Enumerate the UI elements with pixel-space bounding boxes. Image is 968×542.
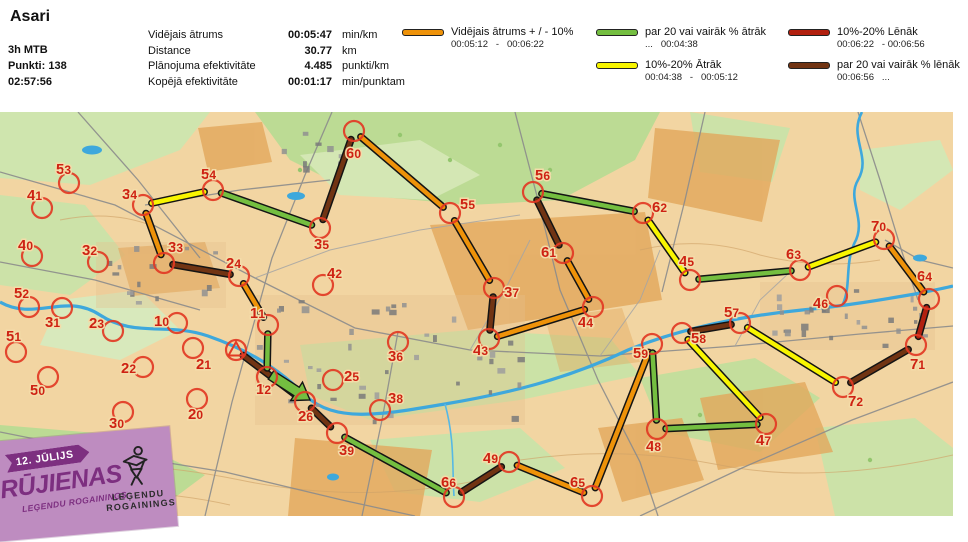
legend-item-orange: Vidējais ātrums + / - 10%00:05:12 - 00:0… — [402, 26, 597, 50]
event-info: 3h MTB Punkti: 138 02:57:56 — [8, 42, 67, 90]
control-label-65: 65 — [570, 474, 585, 491]
control-label-39: 39 — [339, 442, 354, 459]
legend-range: 00:04:38 - 00:05:12 — [596, 72, 791, 83]
control-label-49: 49 — [483, 450, 498, 467]
stat-value-0: 00:05:47 — [270, 28, 332, 44]
control-label-55: 55 — [460, 196, 475, 213]
control-label-34: 34 — [122, 186, 137, 203]
control-label-63: 63 — [786, 246, 801, 263]
legend-item-green: par 20 vai vairāk % ātrāk... 00:04:38 — [596, 26, 791, 50]
control-label-72: 72 — [848, 393, 863, 410]
legend-label: 10%-20% Ātrāk — [645, 59, 721, 71]
legend-swatch-brown — [788, 62, 830, 69]
legend-range: 00:06:56 ... — [788, 72, 968, 83]
stat-value-2: 4.485 — [270, 59, 332, 75]
points-label: Punkti: 138 — [8, 58, 67, 74]
control-label-54: 54 — [201, 166, 216, 183]
route-segment-48-47 — [666, 424, 757, 428]
control-label-42: 42 — [327, 265, 342, 282]
legend-item-yellow: 10%-20% Ātrāk00:04:38 - 00:05:12 — [596, 59, 791, 83]
legend-item-brown: par 20 vai vairāk % lēnāk00:06:56 ... — [788, 59, 968, 83]
control-label-61: 61 — [541, 244, 556, 261]
route-segment-11-12 — [267, 334, 268, 368]
legend-swatch-green — [596, 29, 638, 36]
route-segment-43-37 — [490, 297, 493, 330]
class-label: 3h MTB — [8, 42, 67, 58]
time-label: 02:57:56 — [8, 74, 67, 90]
control-label-35: 35 — [314, 236, 329, 253]
control-label-53: 53 — [56, 161, 71, 178]
control-label-45: 45 — [679, 253, 694, 270]
control-label-71: 71 — [910, 356, 925, 373]
legend-label: Vidējais ātrums + / - 10% — [451, 26, 573, 38]
control-label-11: 11 — [250, 305, 265, 322]
legend-label: par 20 vai vairāk % lēnāk — [837, 59, 960, 71]
control-label-64: 64 — [917, 268, 932, 285]
control-label-22: 22 — [121, 360, 136, 377]
control-label-12: 12 — [256, 381, 271, 398]
control-label-44: 44 — [578, 314, 593, 331]
legend-swatch-orange — [402, 29, 444, 36]
speed-legend: Vidējais ātrums + / - 10%00:05:12 - 00:0… — [400, 26, 968, 106]
control-label-59: 59 — [633, 345, 648, 362]
control-label-41: 41 — [27, 187, 42, 204]
legend-range: 00:05:12 - 00:06:22 — [402, 39, 597, 50]
control-label-52: 52 — [14, 285, 29, 302]
control-label-33: 33 — [168, 239, 183, 256]
stat-label-1: Distance — [148, 44, 270, 60]
legend-item-red: 10%-20% Lēnāk00:06:22 - 00:06:56 — [788, 26, 968, 50]
control-label-37: 37 — [504, 284, 519, 301]
control-label-51: 51 — [6, 328, 21, 345]
control-label-21: 21 — [196, 356, 211, 373]
control-label-60: 60 — [346, 145, 361, 162]
control-label-62: 62 — [652, 199, 667, 216]
stat-value-1: 30.77 — [270, 44, 332, 60]
orienteer-figure-icon — [116, 444, 155, 487]
control-label-56: 56 — [535, 167, 550, 184]
control-label-26: 26 — [298, 408, 313, 425]
control-label-47: 47 — [756, 432, 771, 449]
control-label-23: 23 — [89, 315, 104, 332]
legend-range: ... 00:04:38 — [596, 39, 791, 50]
control-label-25: 25 — [344, 368, 359, 385]
control-label-43: 43 — [473, 342, 488, 359]
control-label-58: 58 — [691, 330, 706, 347]
control-label-20: 20 — [188, 406, 203, 423]
stat-label-0: Vidējais ātrums — [148, 28, 270, 44]
stat-label-2: Plānojuma efektivitāte — [148, 59, 270, 75]
control-label-38: 38 — [388, 390, 403, 407]
control-label-10: 10 — [154, 313, 169, 330]
legend-swatch-red — [788, 29, 830, 36]
control-label-48: 48 — [646, 438, 661, 455]
control-label-24: 24 — [226, 255, 241, 272]
control-label-50: 50 — [30, 382, 45, 399]
organizer-logo: LEĢENDU ROGAININGS — [101, 443, 172, 514]
control-label-31: 31 — [45, 314, 60, 331]
control-label-57: 57 — [724, 304, 739, 321]
control-label-32: 32 — [82, 242, 97, 259]
legend-range: 00:06:22 - 00:06:56 — [788, 39, 968, 50]
control-label-40: 40 — [18, 237, 33, 254]
stat-label-3: Kopējā efektivitāte — [148, 75, 270, 91]
control-label-46: 46 — [813, 295, 828, 312]
page-title: Asari — [10, 8, 50, 26]
header: Asari 3h MTB Punkti: 138 02:57:56 Vidēja… — [0, 0, 968, 112]
control-label-66: 66 — [441, 474, 456, 491]
control-label-36: 36 — [388, 348, 403, 365]
legend-label: par 20 vai vairāk % ātrāk — [645, 26, 766, 38]
event-badge: 12. JŪLIJS RŪJIENAS LEĢENDU ROGAININGS L… — [0, 426, 178, 541]
legend-swatch-yellow — [596, 62, 638, 69]
control-label-70: 70 — [871, 218, 886, 235]
stat-value-3: 00:01:17 — [270, 75, 332, 91]
stats-table: Vidējais ātrums00:05:47min/kmDistance30.… — [148, 28, 422, 90]
route-segment-59-48 — [653, 353, 657, 420]
legend-label: 10%-20% Lēnāk — [837, 26, 918, 38]
